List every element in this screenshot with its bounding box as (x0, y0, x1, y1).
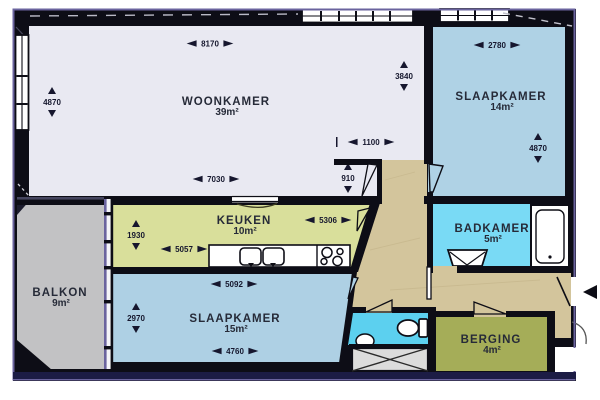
svg-text:8170: 8170 (201, 39, 219, 48)
svg-text:910: 910 (341, 174, 355, 183)
svg-text:5m²: 5m² (484, 234, 502, 245)
svg-text:39m²: 39m² (215, 107, 239, 118)
svg-text:2970: 2970 (127, 314, 145, 323)
svg-text:4760: 4760 (226, 347, 244, 356)
svg-text:14m²: 14m² (490, 102, 514, 113)
svg-text:7030: 7030 (207, 175, 225, 184)
svg-text:10m²: 10m² (233, 226, 257, 237)
svg-text:9m²: 9m² (52, 298, 70, 309)
svg-text:15m²: 15m² (224, 324, 248, 335)
svg-text:1930: 1930 (127, 231, 145, 240)
svg-text:4870: 4870 (43, 98, 61, 107)
svg-text:5092: 5092 (225, 280, 243, 289)
svg-text:4m²: 4m² (483, 345, 501, 356)
svg-text:4870: 4870 (529, 144, 547, 153)
svg-text:2780: 2780 (488, 41, 506, 50)
svg-text:3840: 3840 (395, 72, 413, 81)
svg-text:5306: 5306 (319, 216, 337, 225)
svg-text:1100: 1100 (362, 138, 380, 147)
svg-text:5057: 5057 (175, 245, 193, 254)
